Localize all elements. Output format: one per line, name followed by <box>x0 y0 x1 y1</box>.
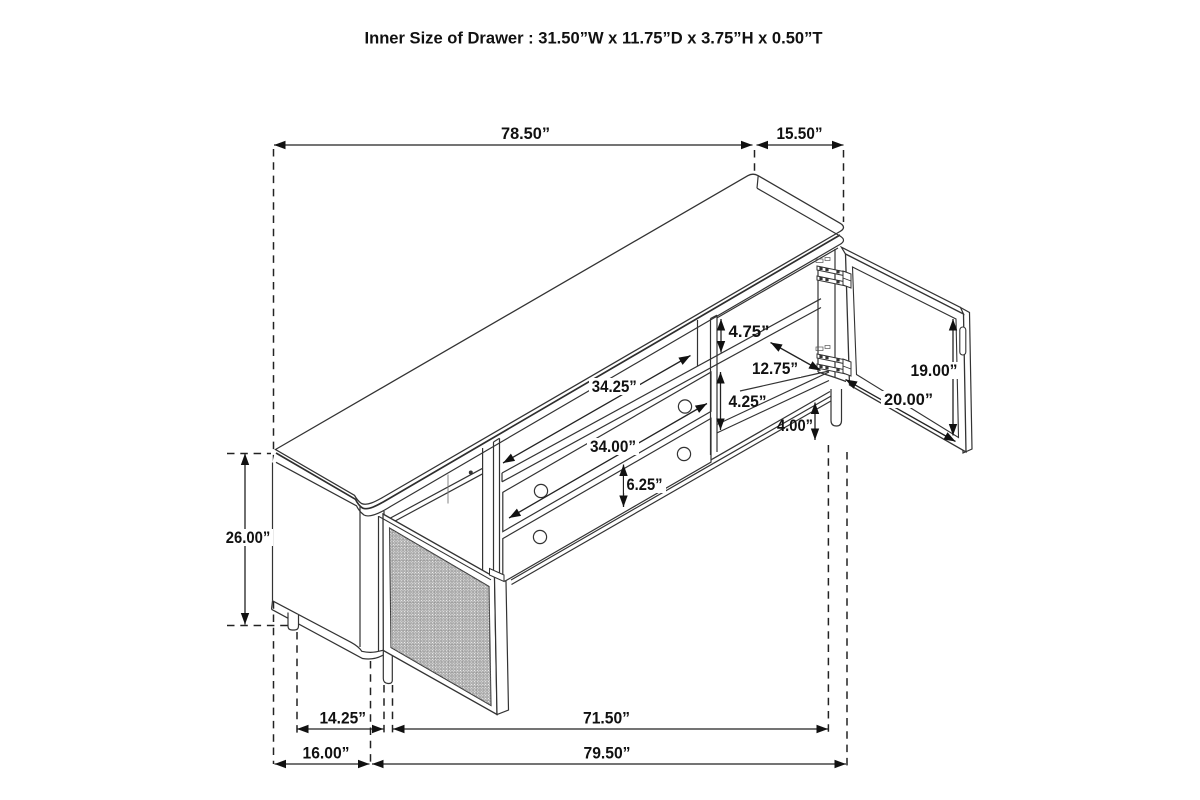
svg-text:34.00”: 34.00” <box>590 437 636 456</box>
svg-text:4.75”: 4.75” <box>729 322 770 341</box>
svg-text:14.25”: 14.25” <box>319 709 366 728</box>
svg-text:15.50”: 15.50” <box>777 124 823 143</box>
svg-text:Inner Size of Drawer : 31.50”W: Inner Size of Drawer : 31.50”W x 11.75”D… <box>365 29 824 48</box>
svg-text:4.25”: 4.25” <box>729 392 767 411</box>
svg-text:34.25”: 34.25” <box>592 377 637 396</box>
svg-text:20.00”: 20.00” <box>884 390 933 409</box>
svg-text:16.00”: 16.00” <box>303 744 350 763</box>
svg-text:4.00”: 4.00” <box>777 416 813 435</box>
svg-text:19.00”: 19.00” <box>911 361 958 380</box>
svg-text:71.50”: 71.50” <box>583 709 630 728</box>
svg-text:6.25”: 6.25” <box>627 475 663 494</box>
svg-text:26.00”: 26.00” <box>226 528 271 547</box>
svg-text:12.75”: 12.75” <box>752 359 798 378</box>
svg-text:79.50”: 79.50” <box>584 744 631 763</box>
svg-text:78.50”: 78.50” <box>501 124 550 143</box>
